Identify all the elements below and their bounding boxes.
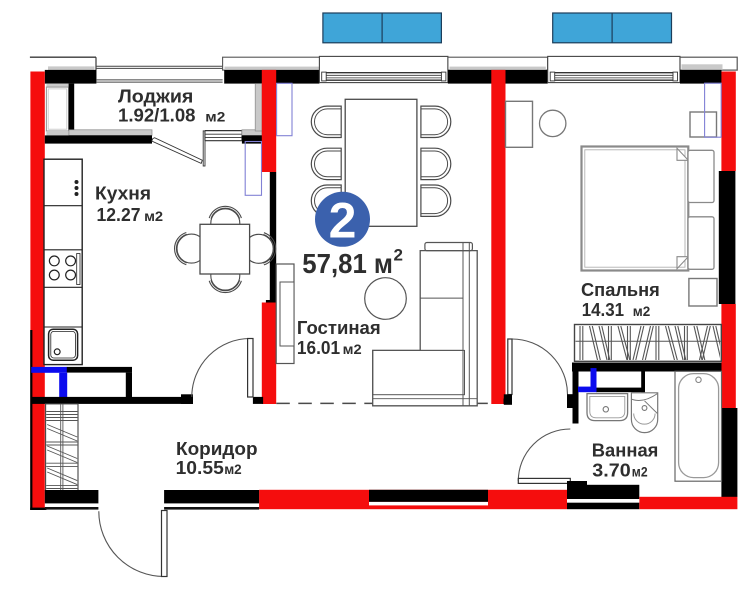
svg-text:1.92/1.08: 1.92/1.08 <box>118 105 196 125</box>
svg-text:Ванная: Ванная <box>592 441 659 461</box>
svg-text:10.55: 10.55 <box>176 458 224 478</box>
svg-text:Гостиная: Гостиная <box>297 318 381 338</box>
svg-text:57,81 м: 57,81 м <box>302 248 393 279</box>
svg-text:м2: м2 <box>632 465 648 480</box>
svg-text:Лоджия: Лоджия <box>118 86 193 106</box>
svg-text:м2: м2 <box>144 209 163 224</box>
svg-text:2: 2 <box>329 192 357 248</box>
svg-text:3.70: 3.70 <box>592 461 630 481</box>
svg-text:14.31: 14.31 <box>582 300 624 320</box>
svg-text:2: 2 <box>394 246 403 265</box>
svg-text:Кухня: Кухня <box>95 183 151 203</box>
svg-text:Спальня: Спальня <box>581 280 660 300</box>
svg-text:м2: м2 <box>343 342 362 357</box>
svg-text:12.27: 12.27 <box>97 205 141 225</box>
svg-text:м2: м2 <box>224 462 242 477</box>
svg-text:м2: м2 <box>205 109 225 124</box>
svg-text:Коридор: Коридор <box>176 439 258 459</box>
svg-text:16.01: 16.01 <box>297 338 340 358</box>
svg-text:м2: м2 <box>633 304 651 319</box>
